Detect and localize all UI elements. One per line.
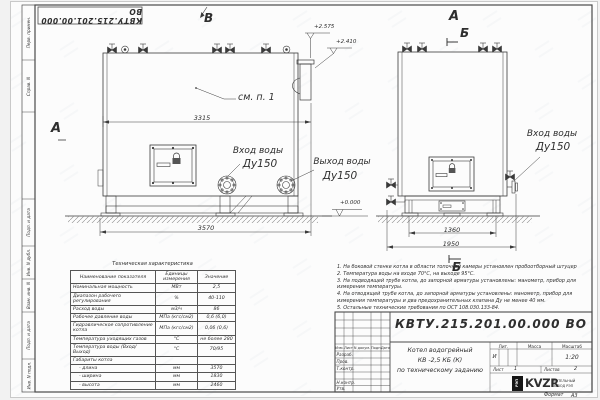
note-3: 3. На подводящей трубе котла, до запорно… <box>337 278 590 291</box>
inlet2-water-label: Вход воды <box>524 129 580 139</box>
tech-table-header: Наименование показателяЕдиницы измерения… <box>71 271 236 284</box>
format-label: Формат <box>544 393 563 398</box>
col-data: Дата <box>381 346 390 350</box>
mass-header: Масса <box>517 344 552 349</box>
inlet2-water-dn: Ду150 <box>529 141 577 153</box>
lit-value: И <box>490 354 499 360</box>
inlet-water-label: Вход воды <box>230 146 286 156</box>
scale-header: Масштаб <box>552 344 592 349</box>
section-label-b-top: Б <box>460 26 469 40</box>
col-izm: Изм. <box>335 346 344 350</box>
drawing-screenshot: { "doc": { "number": "КВТУ.215.201.00.00… <box>0 0 600 400</box>
frame-cell-podp-data-2: Подп. и дата <box>22 312 35 359</box>
doc-number-rotated: КВТУ.215.201.00.000 ВО <box>38 7 142 25</box>
dim-3315: 3315 <box>182 114 222 122</box>
format-value: А3 <box>571 393 578 399</box>
frame-cell-podp-data-1: Подп. и дата <box>22 199 35 246</box>
view-label-a-right: А <box>449 9 459 24</box>
table-row: Гидравлическое сопротивление котлаМПа (к… <box>71 322 236 335</box>
outlet-water-dn: Ду150 <box>316 170 364 182</box>
outlet-water-label: Выход воды <box>312 157 372 167</box>
product-title-line3: по техническому заданию <box>391 367 489 374</box>
inlet-water-dn: Ду150 <box>236 158 284 170</box>
signer-utv: Утв. <box>337 386 346 391</box>
technical-notes: 1. На боковой стенке котла в области топ… <box>337 264 590 312</box>
signer-razrab: Разраб. <box>337 352 353 357</box>
lit-header: Лит. <box>490 344 517 349</box>
signer-prov: Пров. <box>337 359 349 364</box>
product-title-line1: Котел водогрейный <box>391 347 489 354</box>
note-1: 1. На боковой стенке котла в области топ… <box>337 264 590 270</box>
top-left-doc-stamp: КВТУ.215.201.00.000 ВО <box>38 7 142 24</box>
frame-cell-inv-dubl: Инв. N дубл. <box>22 246 35 279</box>
table-row: Номинальная мощностьМВт2,5 <box>71 284 236 292</box>
frame-cell-perv-primen: Перв. примен. <box>22 5 35 60</box>
signer-tkontr: Т.контр. <box>337 366 355 371</box>
sheets-label: Листов <box>544 367 560 372</box>
col-docnum: N докум. <box>353 346 371 350</box>
sheets-value: 2 <box>574 367 577 372</box>
col-podp: Подп. <box>371 346 381 350</box>
frame-cell-sprav: Справ. N <box>22 60 35 112</box>
tech-table-title: Техническая характеристика <box>70 261 235 267</box>
sheet-label: Лист <box>493 367 504 372</box>
col-list: Лист <box>344 346 353 350</box>
manufacturer-name-line1: КОТЕЛЬНЫЙ <box>553 379 575 383</box>
note-2: 2. Температура воды на входе 70°С, на вы… <box>337 271 590 277</box>
frame-cell-inv-podl: Инв. N подл. <box>22 359 35 392</box>
dim-3570: 3570 <box>186 224 226 232</box>
table-row: - высотамм2460 <box>71 381 236 389</box>
elevation-zero: +0.000 <box>340 200 360 206</box>
table-row: Расход водым3/ч86 <box>71 305 236 313</box>
table-row: - ширинамм1830 <box>71 373 236 381</box>
note-4: 4. На отводящей трубе котла, до запорной… <box>337 291 590 304</box>
callout-see-item-1: см. п. 1 <box>238 92 275 103</box>
table-row: - длинамм3570 <box>71 365 236 373</box>
note-5: 5. Остальные технические требования по О… <box>337 305 590 311</box>
manufacturer-name-line2: ЗАВОД РЭП <box>553 384 573 388</box>
sheet-value: 1 <box>514 367 517 372</box>
view-label-a-left: А <box>51 121 61 136</box>
product-title-line2: КВ -2,5 КБ (К) <box>391 357 489 364</box>
dim-1360: 1360 <box>432 226 472 234</box>
frame-cell-vzam-inv: Взам. инв. N <box>22 279 35 312</box>
table-row: Габариты котла <box>71 357 236 365</box>
dim-1950: 1950 <box>431 240 471 248</box>
manufacturer-logo-box: РЭП <box>512 376 523 391</box>
view-label-b: В <box>204 11 213 25</box>
table-row: Диапазон рабочего регулирования%40-110 <box>71 292 236 305</box>
title-block-doc-number: КВТУ.215.201.00.000 ВО <box>392 317 590 331</box>
tech-table: Наименование показателяЕдиницы измерения… <box>70 270 236 390</box>
table-row: Рабочее давление водыМПа (кгс/см2)0,6 (6… <box>71 314 236 322</box>
elevation-2410: +2.410 <box>336 39 356 45</box>
scale-value: 1:20 <box>552 354 592 361</box>
table-row: Температура уходящих газов°Сне более 280 <box>71 335 236 343</box>
elevation-2575: +2.575 <box>314 24 334 30</box>
signer-nkontr: Н.контр. <box>337 380 356 385</box>
table-row: Температура воды (Вход/Выход)°С70/95 <box>71 343 236 356</box>
